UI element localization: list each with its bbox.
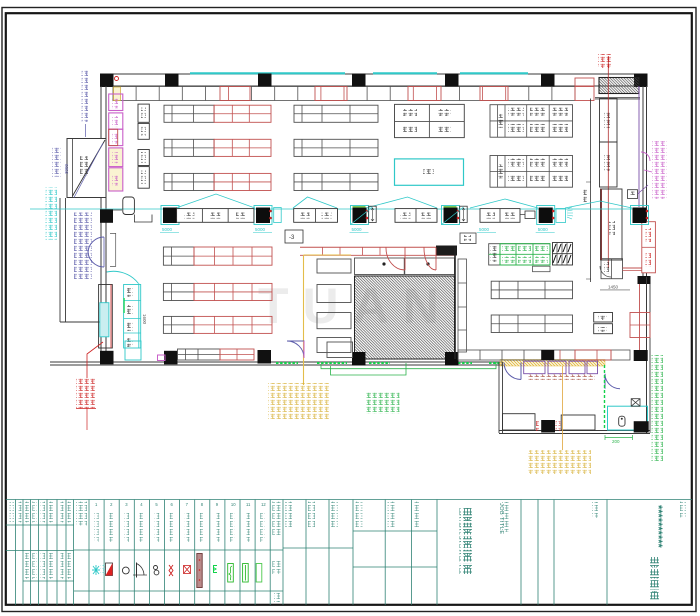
svg-text:-3: -3 [289,235,295,241]
svg-text:5000: 5000 [255,227,266,232]
svg-text:1450: 1450 [608,285,619,290]
svg-text:11: 11 [246,502,251,507]
svg-text:200: 200 [612,439,620,444]
svg-text:1600: 1600 [142,314,147,325]
svg-text:5000: 5000 [162,227,173,232]
svg-text:12: 12 [261,502,266,507]
svg-text:5000: 5000 [538,227,549,232]
svg-text:5000: 5000 [479,227,490,232]
svg-text:10: 10 [231,502,236,507]
svg-text:3000: 3000 [64,163,69,174]
svg-text:**********: ********** [652,505,664,549]
svg-text:5000: 5000 [352,227,363,232]
